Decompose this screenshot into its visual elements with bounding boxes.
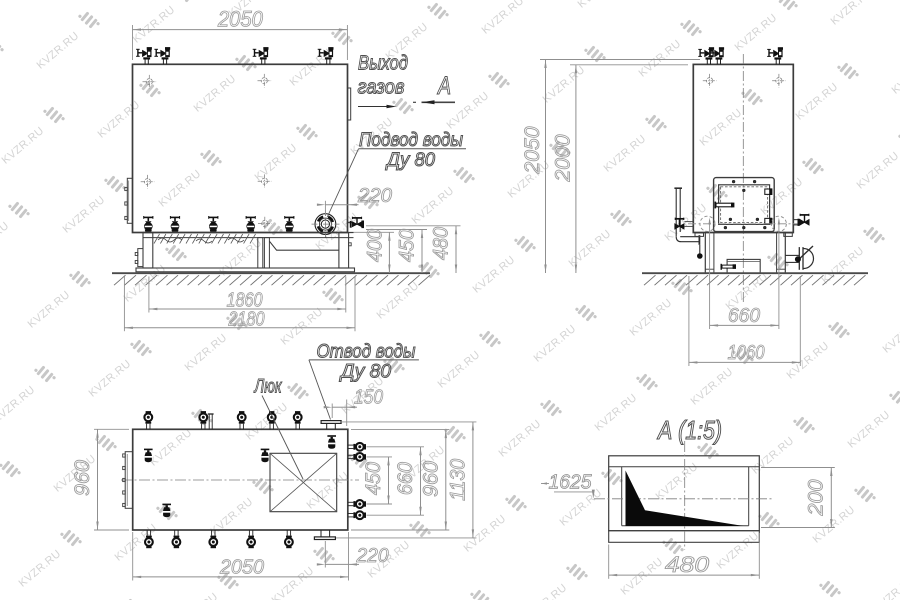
svg-text:Выход: Выход: [358, 53, 408, 75]
svg-text:А: А: [436, 72, 451, 100]
svg-text:2050: 2050: [217, 7, 264, 32]
svg-text:2180: 2180: [228, 308, 265, 330]
svg-text:400: 400: [364, 229, 387, 262]
svg-text:Ду 80: Ду 80: [385, 150, 435, 171]
svg-text:660: 660: [728, 305, 760, 327]
svg-text:1130: 1130: [446, 459, 469, 501]
svg-text:2050: 2050: [219, 556, 265, 579]
svg-text:480: 480: [665, 552, 710, 577]
svg-text:газов: газов: [358, 77, 405, 99]
svg-text:150: 150: [354, 387, 383, 409]
svg-text:1625: 1625: [549, 472, 593, 494]
svg-text:960: 960: [71, 460, 94, 496]
svg-text:А (1:5): А (1:5): [656, 415, 722, 445]
svg-text:960: 960: [420, 461, 443, 497]
svg-text:220: 220: [357, 185, 392, 207]
svg-text:2000: 2000: [551, 134, 574, 182]
svg-text:450: 450: [362, 462, 385, 495]
svg-text:1060: 1060: [728, 342, 765, 364]
svg-text:480: 480: [430, 227, 453, 260]
svg-text:Подвод воды: Подвод воды: [359, 130, 463, 151]
svg-text:220: 220: [356, 545, 389, 567]
svg-text:Ду 80: Ду 80: [339, 362, 391, 383]
svg-text:Отвод воды: Отвод воды: [317, 342, 416, 363]
svg-text:200: 200: [804, 479, 827, 516]
svg-text:450: 450: [396, 229, 419, 262]
svg-text:2050: 2050: [521, 126, 544, 174]
svg-text:Люк: Люк: [253, 377, 282, 398]
svg-text:660: 660: [394, 462, 417, 495]
